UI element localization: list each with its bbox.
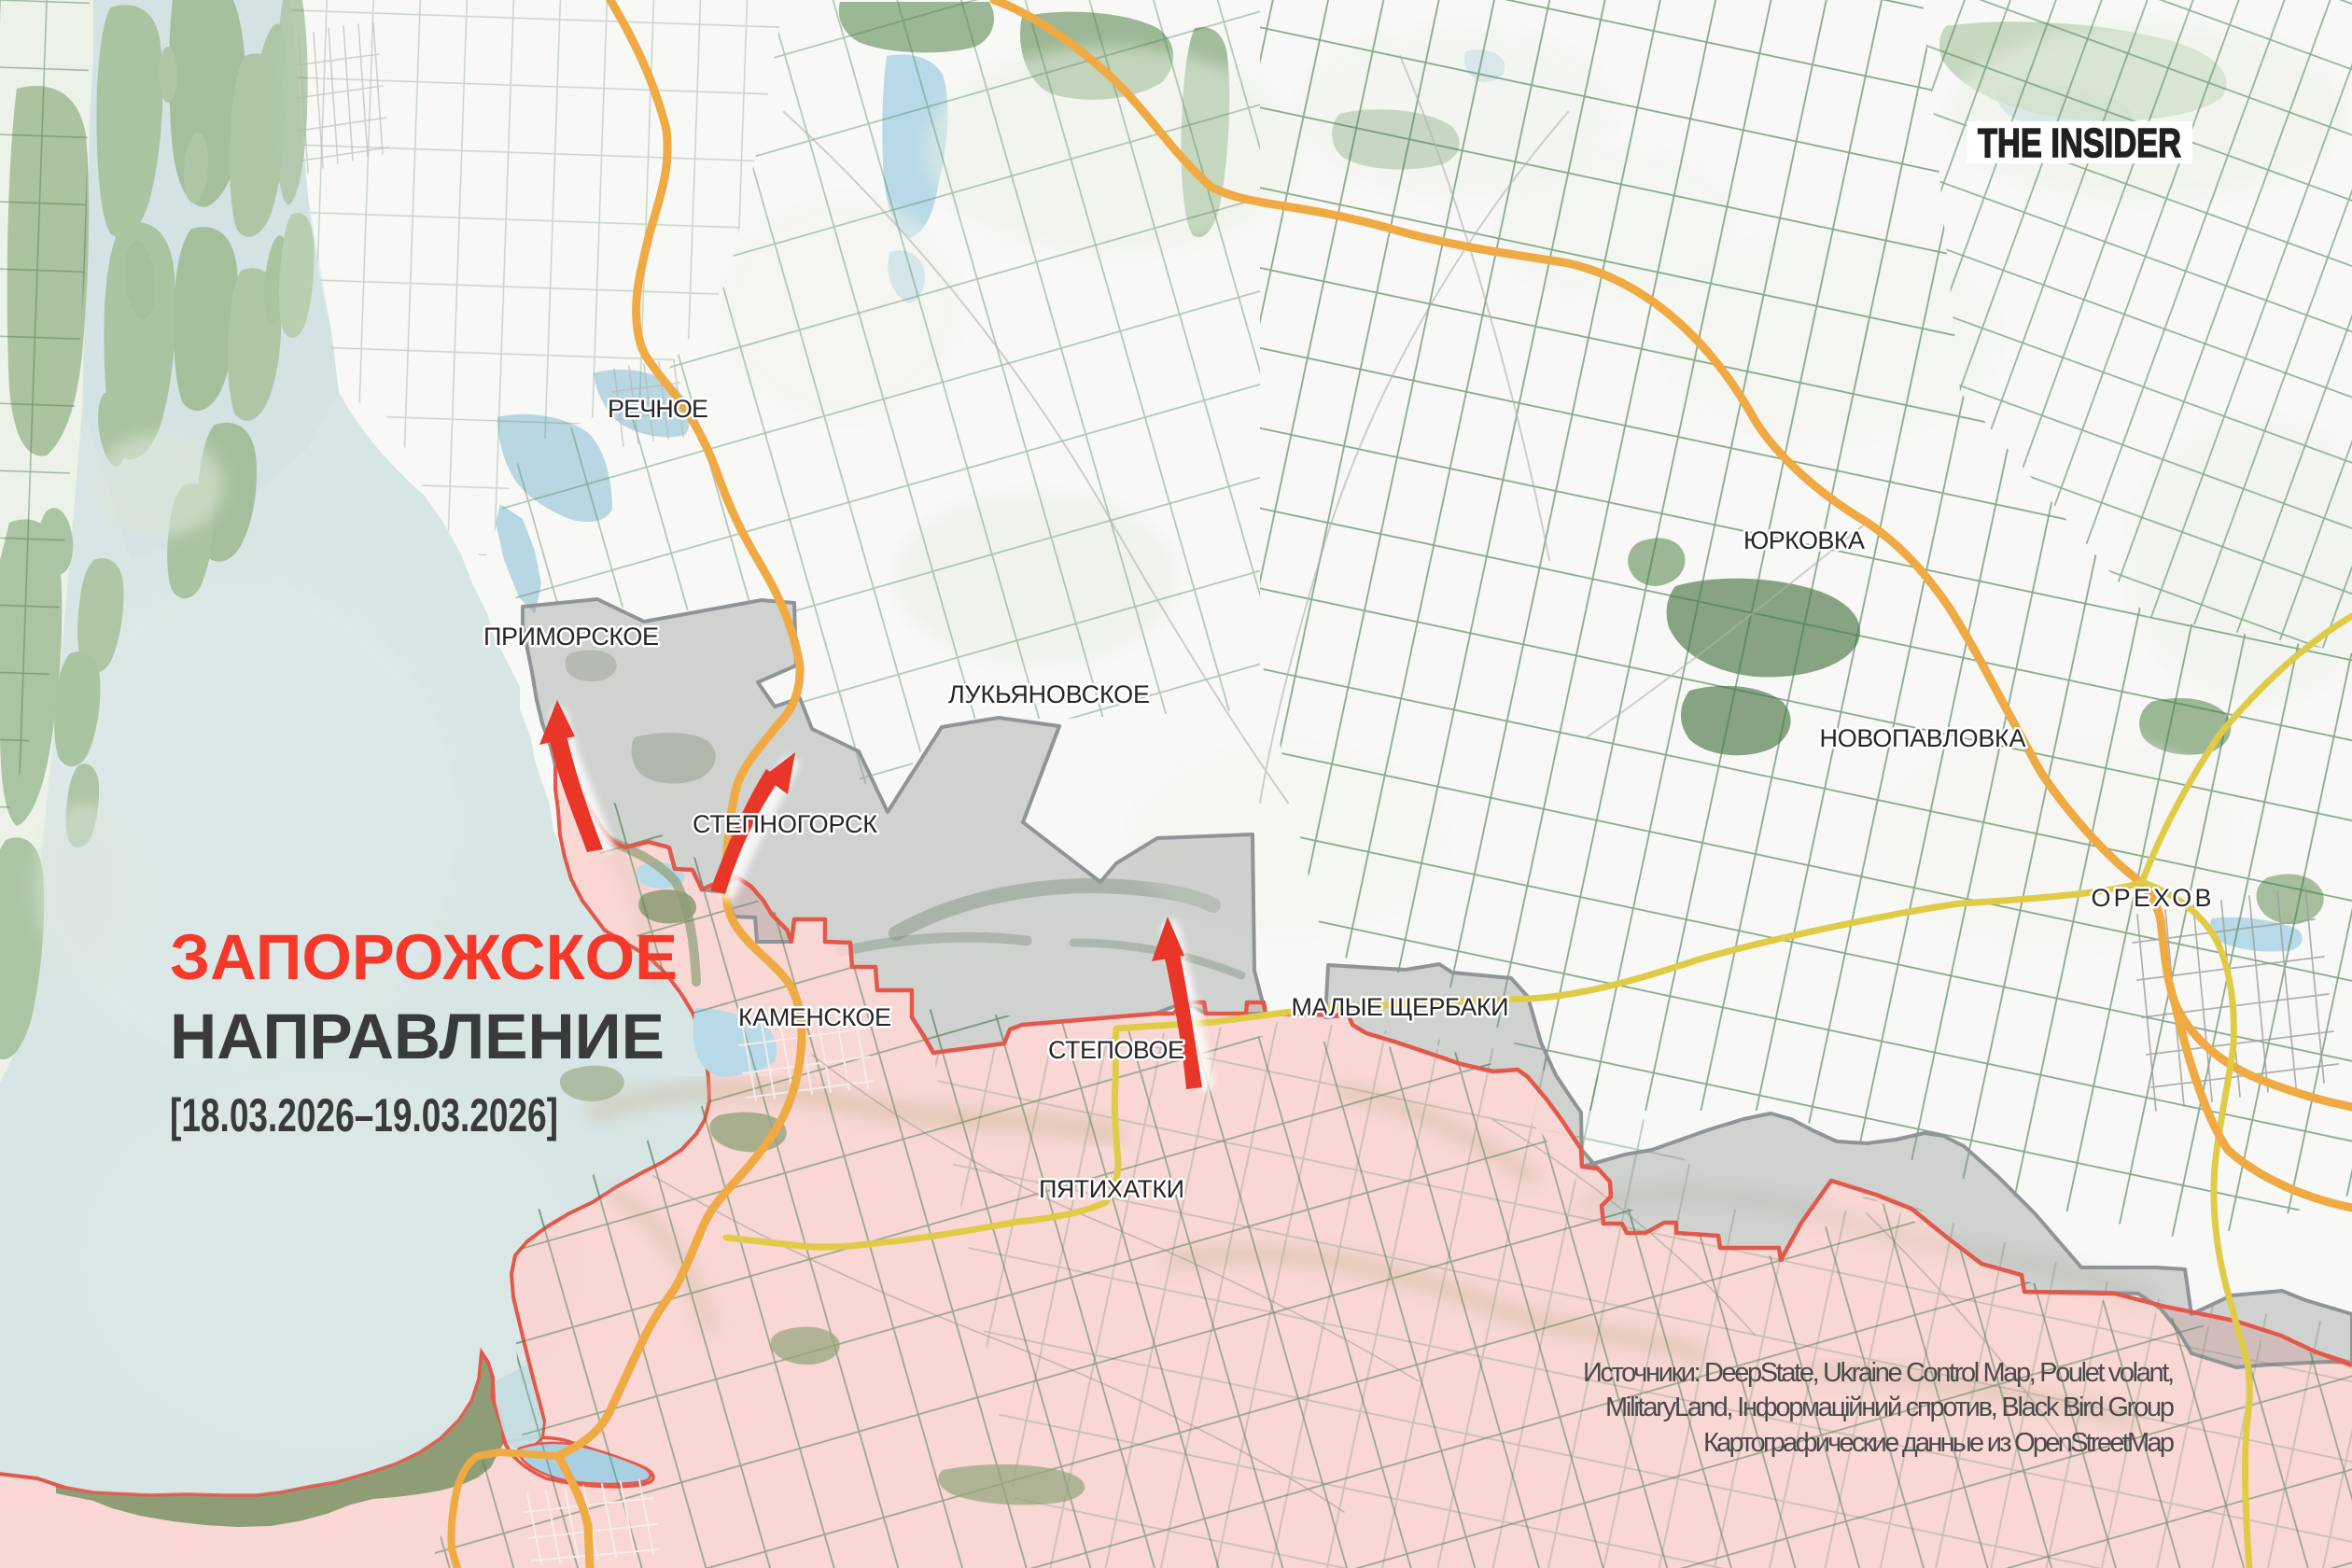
svg-text:ЗАПОРОЖСКОЕ: ЗАПОРОЖСКОЕ	[170, 921, 678, 993]
svg-text:ПЯТИХАТКИ: ПЯТИХАТКИ	[1039, 1175, 1184, 1203]
svg-text:THE INSIDER: THE INSIDER	[1978, 120, 2181, 166]
svg-text:СТЕПНОГОРСК: СТЕПНОГОРСК	[693, 810, 877, 838]
svg-text:СТЕПОВОЕ: СТЕПОВОЕ	[1048, 1036, 1184, 1064]
svg-text:НОВОПАВЛОВКА: НОВОПАВЛОВКА	[1820, 724, 2026, 752]
svg-text:Картографические данные из Ope: Картографические данные из OpenStreetMap	[1703, 1428, 2175, 1458]
svg-text:ПРИМОРСКОЕ: ПРИМОРСКОЕ	[483, 623, 659, 651]
svg-text:Источники: DeepState, Ukraine: Источники: DeepState, Ukraine Control Ma…	[1583, 1358, 2175, 1388]
svg-text:[18.03.2026–19.03.2026]: [18.03.2026–19.03.2026]	[170, 1089, 558, 1141]
svg-text:ЛУКЬЯНОВСКОЕ: ЛУКЬЯНОВСКОЕ	[948, 680, 1150, 708]
svg-text:КАМЕНСКОЕ: КАМЕНСКОЕ	[738, 1003, 891, 1031]
svg-text:MilitaryLand, Інформаційний сп: MilitaryLand, Інформаційний спротив, Bla…	[1605, 1393, 2175, 1422]
svg-text:ЮРКОВКА: ЮРКОВКА	[1743, 526, 1865, 554]
svg-text:НАПРАВЛЕНИЕ: НАПРАВЛЕНИЕ	[170, 1001, 665, 1072]
svg-text:МАЛЫЕ ЩЕРБАКИ: МАЛЫЕ ЩЕРБАКИ	[1292, 993, 1509, 1021]
svg-text:РЕЧНОЕ: РЕЧНОЕ	[608, 395, 708, 423]
